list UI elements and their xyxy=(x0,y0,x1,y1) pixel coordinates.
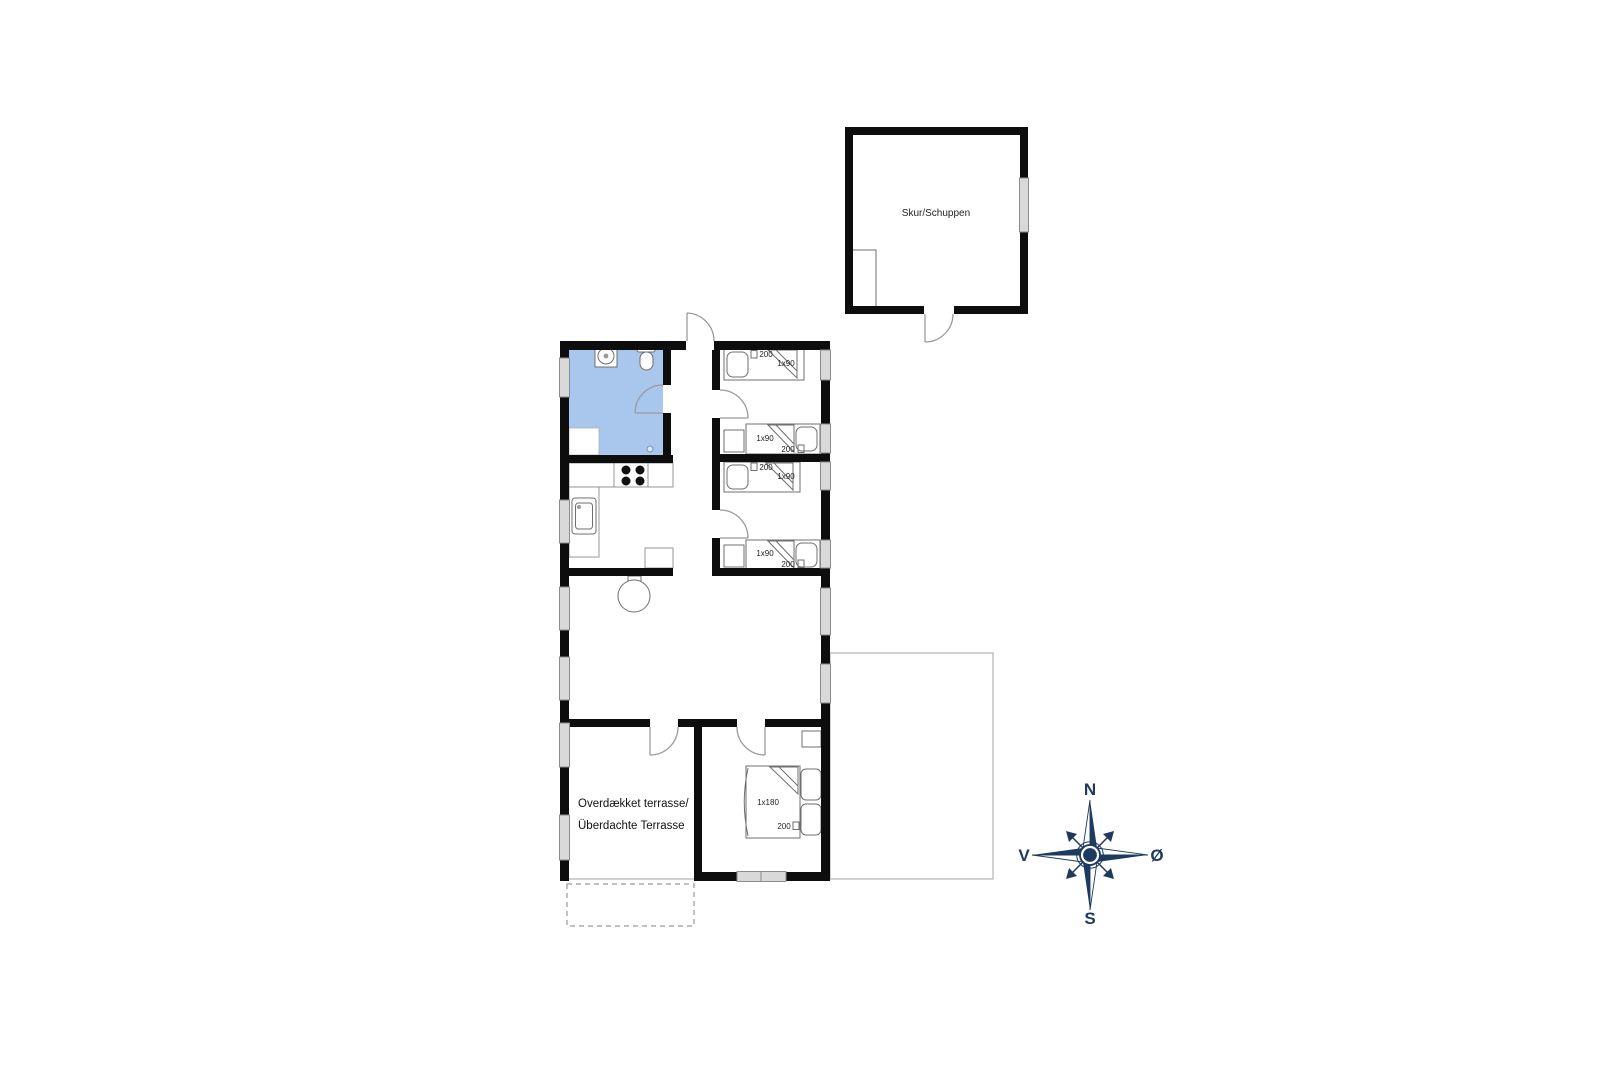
washbasin-drain xyxy=(604,354,609,359)
compass-label-north: N xyxy=(1084,780,1096,799)
compass-rose: N S V Ø xyxy=(1018,780,1163,928)
wall-segment xyxy=(712,462,720,510)
terrace-dashed-outline xyxy=(567,884,694,926)
wall-segment xyxy=(821,341,830,350)
wall-segment xyxy=(845,127,853,314)
wall-segment xyxy=(712,418,720,454)
wall-segment xyxy=(954,306,1028,314)
kitchen-counter-top xyxy=(569,463,673,487)
wall-segment xyxy=(786,872,830,881)
bed-size-label: 200 xyxy=(759,350,773,359)
compass-label-west: V xyxy=(1018,846,1030,865)
compass-label-east: Ø xyxy=(1150,846,1163,865)
door-swing xyxy=(650,727,678,755)
wall-segment xyxy=(821,635,830,664)
wall-segment xyxy=(560,630,569,657)
wall-segment xyxy=(712,454,830,462)
kitchen-block xyxy=(645,548,673,568)
toilet-bowl xyxy=(640,352,653,370)
wall-segment xyxy=(560,341,686,350)
wall-segment xyxy=(663,350,671,385)
wall-segment xyxy=(712,568,830,576)
window xyxy=(821,350,831,380)
bed-size-label: 1x90 xyxy=(777,472,795,481)
wall-segment xyxy=(560,543,569,587)
nightstand xyxy=(802,731,821,747)
wall-segment xyxy=(845,127,1028,135)
open-terrace-rect xyxy=(830,653,993,879)
wall-segment xyxy=(765,719,830,727)
wall-segment xyxy=(560,767,569,815)
wall-segment xyxy=(694,719,702,881)
window xyxy=(1020,178,1029,232)
wood-stove-icon xyxy=(618,580,650,612)
shed-label: Skur/Schuppen xyxy=(902,208,970,219)
pillow xyxy=(801,769,821,800)
nightstand xyxy=(724,430,744,452)
wall-segment xyxy=(663,413,671,455)
window xyxy=(821,424,831,453)
wall-segment xyxy=(560,455,673,463)
window xyxy=(821,540,831,568)
wall-segment xyxy=(821,703,830,881)
floor-drain-icon xyxy=(647,446,653,452)
window xyxy=(560,587,570,630)
bed-size-label: 1x180 xyxy=(757,798,779,807)
bed-size-label: 200 xyxy=(777,822,791,831)
bed-single: 200 1x90 xyxy=(724,349,804,380)
wall-segment xyxy=(560,568,673,576)
wall-segment xyxy=(821,490,830,540)
door-swing xyxy=(720,390,748,418)
window xyxy=(560,723,570,767)
entrance-door-swing xyxy=(687,313,714,341)
door-swing xyxy=(925,314,953,342)
bedroom-2: 200 1x90 1x90 200 xyxy=(724,462,820,570)
wall-segment xyxy=(560,397,569,500)
compass-hub-inner xyxy=(1082,847,1098,863)
terrace-label-line1: Overdækket terrasse/ xyxy=(578,798,689,810)
master-bedroom: 1x180 200 xyxy=(744,731,821,838)
window xyxy=(821,588,831,635)
terrace-label-line2: Überdachte Terrasse xyxy=(578,820,685,832)
bed-single: 200 1x90 xyxy=(724,462,800,492)
shed-partition xyxy=(853,250,876,306)
bed-size-label: 200 xyxy=(759,463,773,472)
window xyxy=(560,815,570,860)
wall-segment xyxy=(714,341,830,350)
floorplan-canvas: Skur/Schuppen xyxy=(0,0,1600,1066)
bed-size-label: 1x90 xyxy=(756,549,774,558)
covered-terrace: Overdækket terrasse/ Überdachte Terrasse xyxy=(578,798,689,832)
wall-segment xyxy=(1020,232,1028,314)
shed: Skur/Schuppen xyxy=(845,127,1029,342)
kitchen xyxy=(569,463,673,568)
door-swing xyxy=(737,727,765,755)
wall-segment xyxy=(560,860,569,881)
floorplan-drawing: Skur/Schuppen xyxy=(0,0,1600,1066)
bed-size-label: 1x90 xyxy=(756,434,774,443)
bedroom-1: 200 1x90 1x90 200 xyxy=(724,349,820,454)
faucet-icon xyxy=(577,505,581,509)
window xyxy=(560,657,570,700)
wall-segment xyxy=(821,380,830,424)
bed-single: 1x90 200 xyxy=(724,540,820,570)
wall-segment xyxy=(560,341,569,358)
wall-segment xyxy=(1020,127,1028,178)
wall-segment xyxy=(560,719,650,727)
window xyxy=(821,462,831,490)
bed-size-label: 200 xyxy=(781,445,795,454)
wall-segment xyxy=(712,350,720,390)
main-house: 200 1x90 1x90 200 200 xyxy=(560,313,831,882)
living-room xyxy=(618,576,650,612)
wall-segment xyxy=(678,719,737,727)
bed-double: 1x180 200 xyxy=(744,766,821,838)
pillow xyxy=(801,804,821,835)
compass-label-south: S xyxy=(1084,909,1095,928)
window xyxy=(560,358,570,397)
shower-area xyxy=(569,428,599,455)
window xyxy=(560,500,570,543)
bed-single: 1x90 200 xyxy=(724,424,820,454)
bed-size-label: 200 xyxy=(781,560,795,569)
nightstand xyxy=(724,545,744,567)
bed-size-label: 1x90 xyxy=(777,359,795,368)
door-swing xyxy=(720,510,748,538)
window xyxy=(821,664,831,703)
wall-segment xyxy=(845,306,924,314)
